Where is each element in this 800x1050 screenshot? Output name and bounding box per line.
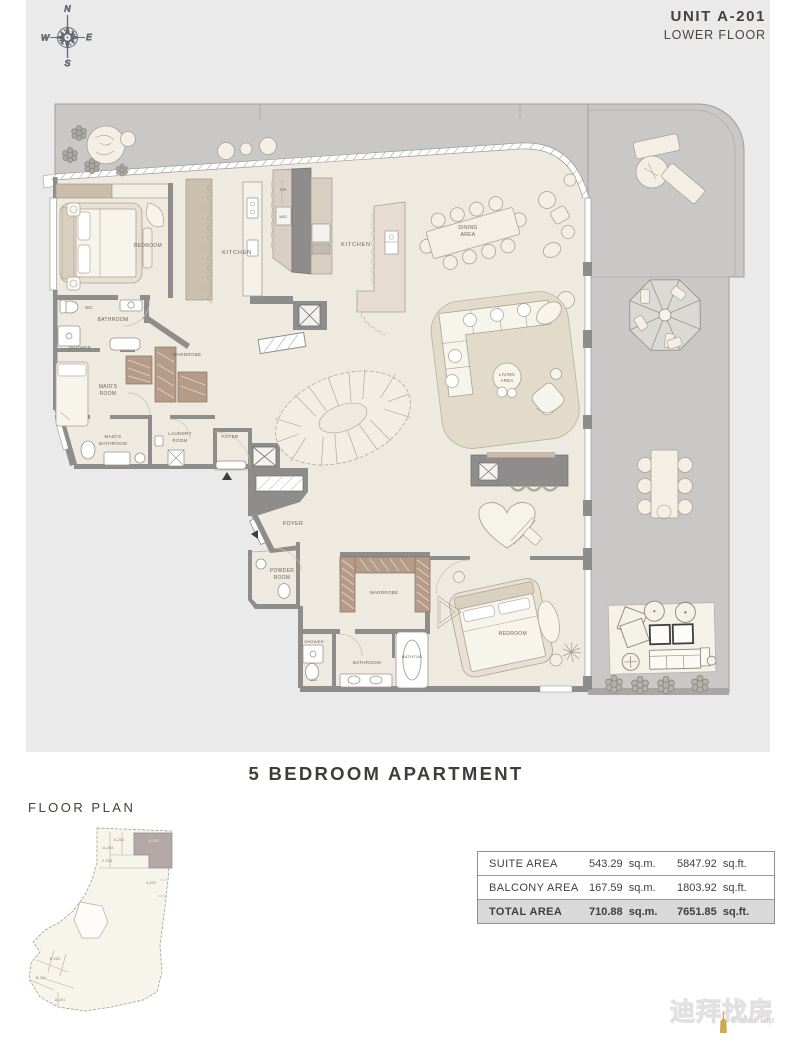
svg-text:BATHTUB: BATHTUB <box>402 654 423 659</box>
svg-text:F/R: F/R <box>280 187 287 192</box>
svg-text:FOYER: FOYER <box>283 521 303 527</box>
svg-text:MAID'S: MAID'S <box>105 434 122 439</box>
svg-text:KITCHEN: KITCHEN <box>222 250 252 256</box>
svg-text:AREA: AREA <box>461 232 476 238</box>
svg-text:B-203: B-203 <box>50 956 61 961</box>
svg-text:SHOWER: SHOWER <box>304 639 324 644</box>
svg-text:DINING: DINING <box>458 225 477 231</box>
svg-text:ROOM: ROOM <box>274 575 291 581</box>
svg-text:WC: WC <box>310 677 317 682</box>
svg-text:B-201: B-201 <box>36 975 47 980</box>
svg-text:WARDROBE: WARDROBE <box>370 590 399 595</box>
svg-text:A-201: A-201 <box>149 838 160 843</box>
svg-text:BEDROOM: BEDROOM <box>134 243 162 249</box>
svg-text:BEDROOM: BEDROOM <box>499 631 527 637</box>
svg-text:A-204: A-204 <box>103 845 114 850</box>
svg-text:BATHROOM: BATHROOM <box>98 317 129 323</box>
svg-text:BATHROOM: BATHROOM <box>353 660 381 665</box>
svg-text:BATHROOM: BATHROOM <box>99 441 127 446</box>
svg-text:FOYER: FOYER <box>221 434 238 439</box>
svg-text:W/D: W/D <box>279 214 287 219</box>
svg-text:LIVING: LIVING <box>499 372 515 377</box>
svg-text:2-704: 2-704 <box>102 858 113 863</box>
svg-text:POWDER: POWDER <box>270 568 294 574</box>
svg-text:MAID'S: MAID'S <box>99 384 118 390</box>
svg-text:KITCHEN: KITCHEN <box>341 242 371 248</box>
svg-text:E: E <box>86 32 92 42</box>
svg-text:ROOM: ROOM <box>100 391 117 397</box>
svg-text:AREA: AREA <box>500 378 513 383</box>
svg-text:LAUNDRY: LAUNDRY <box>168 431 192 436</box>
svg-text:A-202: A-202 <box>114 837 125 842</box>
svg-text:N: N <box>64 4 71 14</box>
svg-text:W: W <box>41 33 50 43</box>
svg-text:SHOWER: SHOWER <box>69 345 92 350</box>
svg-text:A-201: A-201 <box>55 997 66 1002</box>
svg-text:ROOM: ROOM <box>172 438 187 443</box>
svg-text:WC: WC <box>85 305 94 310</box>
svg-text:WARDROBE: WARDROBE <box>173 352 202 357</box>
svg-text:4-202: 4-202 <box>146 880 157 885</box>
svg-text:S: S <box>65 58 71 68</box>
